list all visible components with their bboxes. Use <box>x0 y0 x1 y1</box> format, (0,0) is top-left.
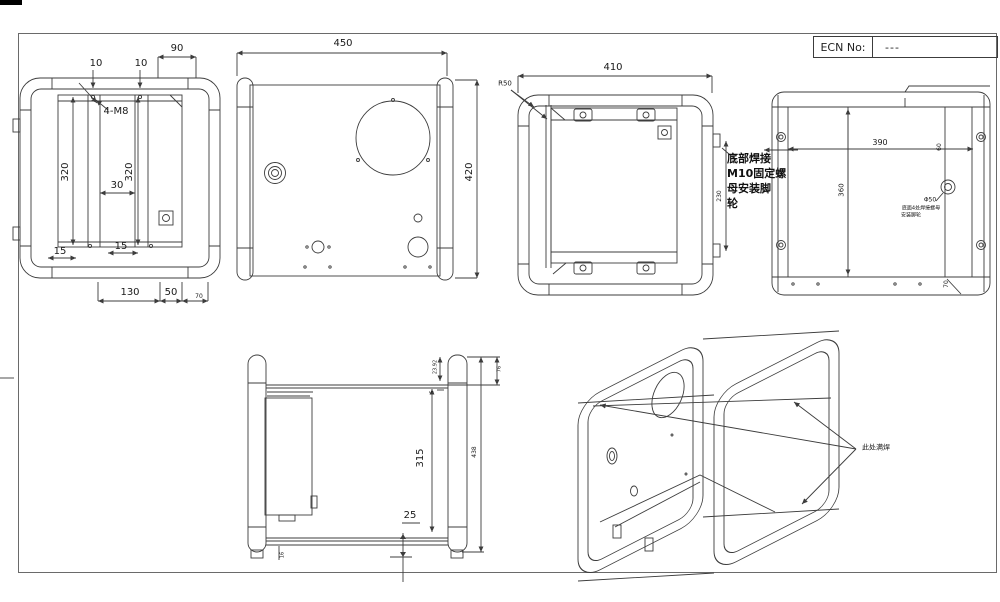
dim-side-25: 25 <box>404 511 417 521</box>
ecn-title-block: ECN No: --- <box>813 36 998 58</box>
dim-front-90: 90 <box>171 44 184 54</box>
inner-box <box>265 398 312 515</box>
dim-panel-450: 450 <box>333 39 352 49</box>
dim-front-4m8: 4-M8 <box>104 107 129 117</box>
drawing-linework <box>0 0 1000 602</box>
weld-note-line4: 轮 <box>727 196 791 211</box>
view-iso <box>578 331 856 581</box>
dim-front-50: 50 <box>165 288 178 298</box>
view-side <box>248 355 500 582</box>
dim-side-2392: 23.92 <box>434 360 439 374</box>
dim-front-10a: 10 <box>90 59 103 69</box>
dim-front-15a: 15 <box>54 247 67 257</box>
weld-note-line2: M10固定螺 <box>727 166 791 181</box>
dim-front-320a: 320 <box>61 162 71 181</box>
weld-note-line3: 母安装脚 <box>727 181 791 196</box>
dim-side-76: 76 <box>498 366 503 372</box>
dim-front-30: 30 <box>111 181 124 191</box>
view-back <box>772 86 990 295</box>
dim-front-70: 70 <box>195 294 203 300</box>
dim-front-320b: 320 <box>125 162 135 181</box>
ecn-value: --- <box>873 37 997 57</box>
dim-door-410: 410 <box>603 63 622 73</box>
dim-back-390: 390 <box>872 139 887 147</box>
weld-note: 底部焊接 M10固定螺 母安装脚 轮 <box>727 151 791 211</box>
hole-note-line3: 安装脚轮 <box>901 212 921 219</box>
large-hole <box>356 101 430 175</box>
caster-mount-hole <box>941 180 955 194</box>
dim-back-60: 60 <box>937 143 943 151</box>
view-panel <box>237 53 477 280</box>
dim-side-438: 438 <box>472 446 478 457</box>
weld-note-line1: 底部焊接 <box>727 151 791 166</box>
grommet-hole <box>265 163 286 184</box>
dim-back-70: 70 <box>944 280 950 288</box>
hole-note-line2: 底面4处焊接螺母 <box>902 205 940 212</box>
dim-door-r50: R50 <box>498 81 512 88</box>
ecn-label: ECN No: <box>814 37 873 57</box>
dim-door-230: 230 <box>717 190 723 201</box>
hole-note-dia: Φ50 <box>924 197 936 204</box>
dim-side-5: 5 <box>431 390 436 393</box>
dim-front-15b: 15 <box>115 242 128 252</box>
dim-front-10b: 10 <box>135 59 148 69</box>
dim-side-315: 315 <box>416 448 426 467</box>
dim-panel-420: 420 <box>465 162 475 181</box>
dim-side-16: 16 <box>281 552 286 558</box>
dim-front-130: 130 <box>120 288 139 298</box>
iso-weld-note: 此处满焊 <box>862 445 890 452</box>
view-front <box>13 57 220 301</box>
drawing-sheet: ECN No: --- 90 10 10 4-M8 320 320 30 15 … <box>0 0 1000 602</box>
dim-back-360: 360 <box>839 183 846 196</box>
